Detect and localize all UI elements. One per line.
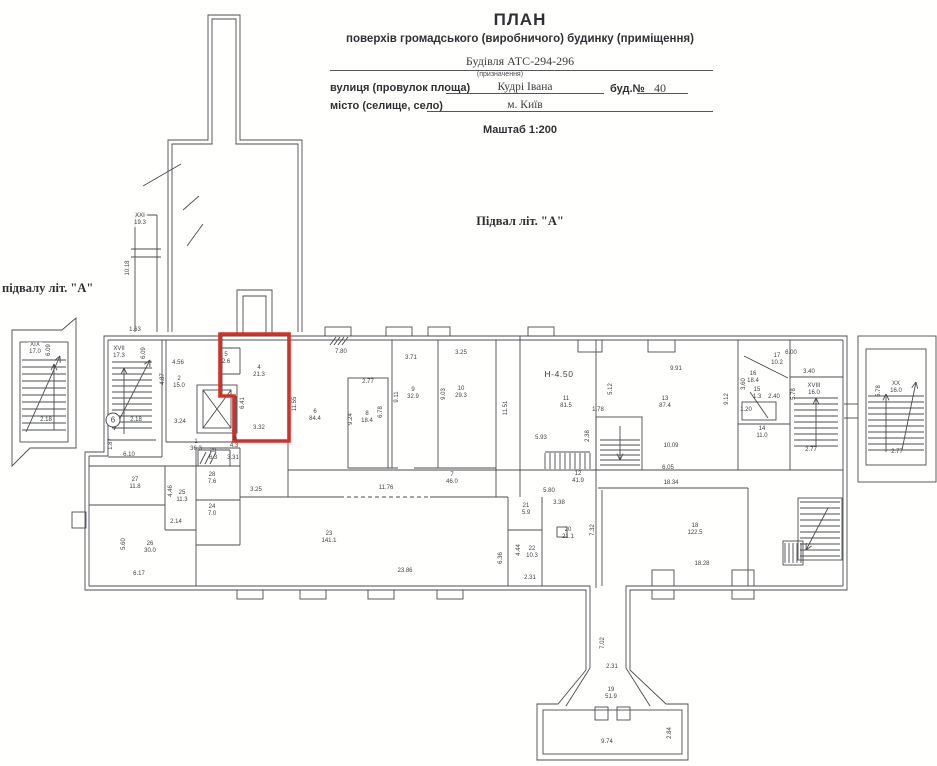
- dimension-label: 6.00: [785, 350, 797, 356]
- dimension-label: 2.40: [768, 394, 780, 400]
- dimension-label: 2.18: [130, 417, 142, 423]
- room-label: 23 141.1: [321, 531, 336, 545]
- dimension-label: 3.60: [741, 378, 747, 390]
- room-label: 29 6.3: [209, 448, 217, 462]
- dimension-label: 3.71: [405, 355, 417, 361]
- room-label: 1 36.3: [190, 439, 202, 453]
- dimension-label: 11.76: [379, 485, 394, 491]
- dimension-label: 5.78: [791, 388, 797, 400]
- dimension-label: 5.80: [543, 488, 555, 494]
- dimension-label: 2.31: [524, 575, 536, 581]
- room-label: 12 41.9: [572, 471, 584, 485]
- dimension-label: 5.93: [535, 435, 547, 441]
- dimension-label: 3.25: [250, 487, 262, 493]
- dimension-label: 6.36: [498, 552, 504, 564]
- room-label: 17 10.2: [771, 353, 783, 367]
- room-label: 5 2.6: [222, 352, 230, 366]
- stair-label: XXI 19.3: [133, 213, 147, 227]
- dimension-label: 9.12: [724, 393, 730, 405]
- dimension-label: 1.20: [740, 407, 752, 413]
- dimension-label: 1.63: [129, 327, 141, 333]
- dimension-label: 7.80: [335, 349, 347, 355]
- dimension-label: 7.02: [600, 637, 606, 649]
- dimension-label: 2.31: [606, 664, 618, 670]
- room-label: 2 15.0: [173, 376, 185, 390]
- room-label: 18 122.5: [687, 523, 702, 537]
- dimension-label: 18.28: [694, 561, 709, 567]
- room-label: 19 51.9: [605, 687, 617, 701]
- node-mark: 6: [106, 413, 121, 428]
- dimension-label: 3.38: [553, 500, 565, 506]
- room-label: 16 18.4: [747, 371, 759, 385]
- floor-plan-svg: [0, 0, 937, 766]
- dimension-label: 4.46: [168, 485, 174, 497]
- room-label: 21 5.9: [522, 503, 530, 517]
- dimension-label: 4.87: [160, 373, 166, 385]
- dimension-label: 1.78: [592, 407, 604, 413]
- room-label: 4 21.3: [253, 365, 265, 379]
- room-label: 28 7.6: [208, 472, 216, 486]
- dimension-label: 2.84: [667, 727, 673, 739]
- room-label: 24 7.0: [208, 504, 216, 518]
- height-mark: Н-4.50: [544, 369, 573, 379]
- room-label: 14 11.0: [756, 426, 767, 440]
- stair-label: XVIII 16.0: [806, 383, 821, 397]
- room-label: 27 11.8: [129, 477, 140, 491]
- room-label: 3 4.3: [230, 436, 238, 450]
- room-label: 20 21.1: [562, 527, 574, 541]
- dimension-label: 2.77: [362, 379, 374, 385]
- dimension-label: 10.18: [125, 260, 131, 275]
- room-label: 26 30.0: [144, 541, 156, 555]
- dimension-label: 2.18: [40, 417, 52, 423]
- dimension-label: 4.44: [516, 544, 522, 556]
- dimension-label: 9.91: [670, 366, 682, 372]
- room-label: 9 32.9: [407, 387, 419, 401]
- dimension-label: 9.11: [394, 391, 400, 402]
- dimension-label: 6.78: [378, 406, 384, 418]
- dimension-label: 3.40: [803, 369, 815, 375]
- dimension-label: 6.09: [141, 347, 147, 359]
- room-label: 22 10.3: [526, 546, 538, 560]
- dimension-label: 5.78: [876, 385, 882, 397]
- dimension-label: 2.77: [891, 449, 903, 455]
- room-label: 6 84.4: [309, 409, 321, 423]
- dimension-label: 5.60: [121, 538, 127, 550]
- dimension-label: 3.25: [455, 350, 467, 356]
- dimension-label: 5.12: [608, 383, 614, 395]
- dimension-label: 1.87: [108, 438, 114, 450]
- room-label: 25 11.3: [176, 490, 187, 504]
- dimension-label: 6.41: [240, 397, 246, 409]
- room-label: 11 81.5: [560, 396, 572, 410]
- dimension-label: 2.14: [170, 519, 182, 525]
- room-label: 8 18.4: [361, 411, 373, 425]
- dimension-label: 4.56: [172, 360, 184, 366]
- dimension-label: 3.24: [174, 419, 186, 425]
- stair-label: XIX 17.0: [28, 342, 42, 356]
- room-label: 10 29.3: [455, 386, 467, 400]
- scanned-plan-sheet: ПЛАН поверхів громадського (виробничого)…: [0, 0, 937, 766]
- dimension-label: 9.24: [348, 413, 354, 425]
- dimension-label: 3.32: [253, 425, 265, 431]
- stair-label: XX 16.0: [889, 381, 903, 395]
- dimension-label: 6.10: [123, 452, 135, 458]
- dimension-label: 11.55: [292, 397, 298, 412]
- dimension-label: 18.34: [663, 480, 678, 486]
- stair-label: XVII 17.3: [112, 346, 126, 360]
- dimension-label: 2.77: [805, 447, 817, 453]
- dimension-label: 3.31: [227, 455, 239, 461]
- dimension-label: 7.32: [590, 524, 596, 536]
- dimension-label: 10.09: [663, 443, 678, 449]
- room-label: 15 1.3: [753, 387, 761, 401]
- room-label: 7 46.0: [446, 472, 458, 486]
- dimension-label: 23.86: [397, 568, 412, 574]
- dimension-label: 6.09: [46, 344, 52, 356]
- dimension-label: 9.74: [601, 739, 613, 745]
- dimension-label: 6.05: [662, 465, 674, 471]
- dimension-label: 11.51: [503, 401, 509, 416]
- dimension-label: 9.03: [441, 388, 447, 400]
- dimension-label: 2.38: [585, 430, 591, 442]
- dimension-label: 6.17: [133, 571, 145, 577]
- room-label: 13 87.4: [659, 396, 671, 410]
